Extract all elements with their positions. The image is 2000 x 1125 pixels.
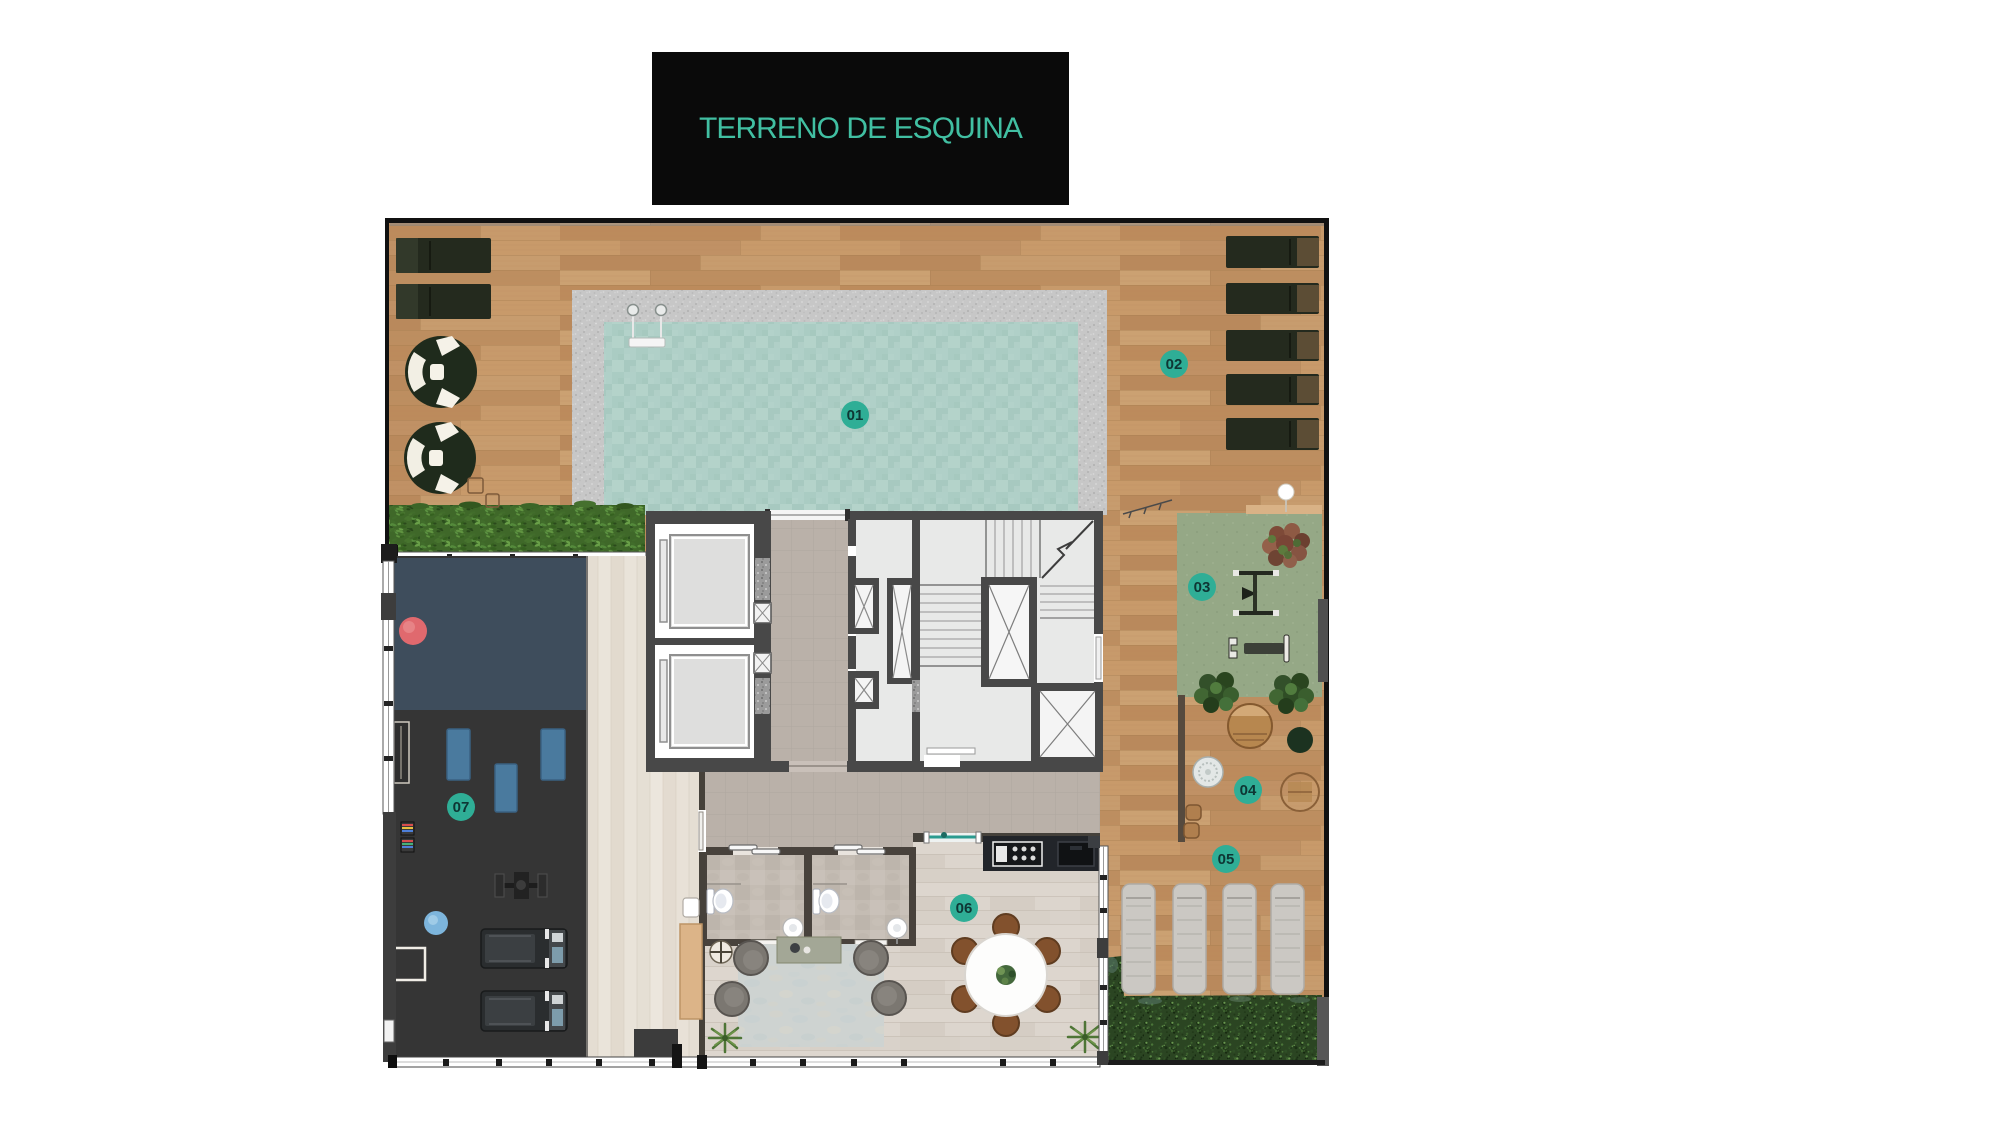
svg-text:03: 03 bbox=[1194, 579, 1211, 596]
svg-text:02: 02 bbox=[1166, 356, 1183, 373]
svg-text:06: 06 bbox=[956, 900, 973, 917]
svg-text:01: 01 bbox=[847, 407, 864, 424]
svg-text:05: 05 bbox=[1218, 851, 1235, 868]
svg-text:07: 07 bbox=[453, 799, 470, 816]
svg-text:04: 04 bbox=[1240, 782, 1257, 799]
